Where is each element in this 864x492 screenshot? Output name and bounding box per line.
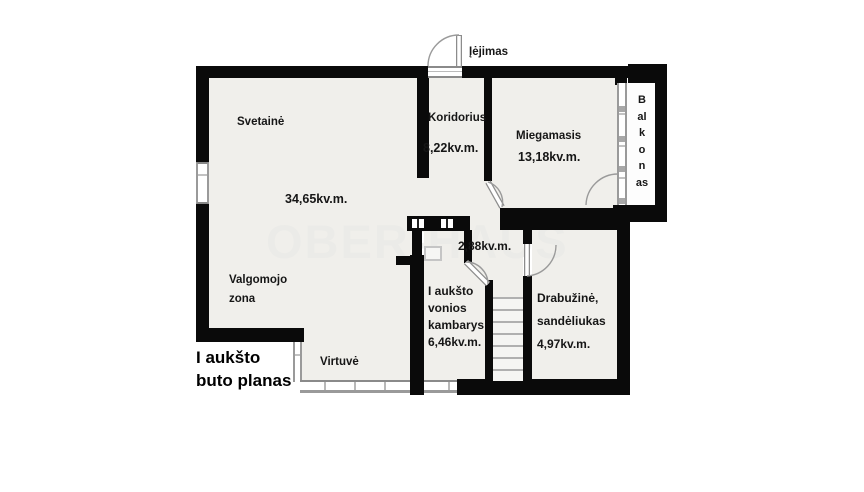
wall-segment: [485, 280, 493, 381]
entrance-label: Įėjimas: [469, 46, 508, 58]
door-entrance: [428, 35, 459, 66]
room-label-line: o: [630, 142, 654, 159]
room-label-drabuzine: Drabužinė, sandėliukas 4,97kv.m.: [537, 287, 606, 356]
wall-segment: [655, 64, 667, 222]
entrance-threshold: [428, 66, 462, 78]
room-label-line: al: [630, 109, 654, 126]
wall-segment: [484, 78, 492, 181]
room-label-koridorius: Koridorius: [428, 112, 486, 124]
room-label-virtuve: Virtuvė: [320, 356, 359, 368]
window: [424, 380, 457, 393]
room-label-line: I aukšto: [428, 283, 484, 300]
stair-tread: [493, 321, 523, 333]
room-label-line: kambarys: [428, 317, 484, 334]
wall-segment: [196, 66, 209, 162]
room-label-line: sandėliukas: [537, 310, 606, 333]
wall-segment: [196, 204, 209, 342]
window-latch-icon: [619, 106, 625, 112]
window-latch-icon: [619, 198, 625, 204]
room-label-line: zona: [229, 290, 287, 309]
floor-plan: OBER-HAUS: [0, 0, 864, 492]
plan-title-line: buto planas: [196, 369, 291, 392]
stair-landing: [493, 282, 523, 297]
wall-segment: [457, 379, 630, 395]
room-label-vonia: I aukšto vonios kambarys 6,46kv.m.: [428, 283, 484, 351]
plan-title-line: I aukšto: [196, 346, 291, 369]
area-label-tualetas: 2,88kv.m.: [458, 239, 511, 253]
stair-tread: [493, 333, 523, 345]
door-arc: [428, 35, 459, 66]
wall-segment: [462, 66, 628, 78]
room-label-line: n: [630, 158, 654, 175]
area-label-svetaine: 34,65kv.m.: [285, 192, 347, 206]
room-label-line: B: [630, 92, 654, 109]
window: [196, 162, 209, 204]
wall-segment: [396, 256, 412, 265]
room-label-line: Valgomojo: [229, 271, 287, 290]
staircase: [493, 282, 523, 381]
room-label-line: vonios: [428, 300, 484, 317]
room-label-miegamasis: Miegamasis: [516, 130, 581, 142]
room-label-svetaine: Svetainė: [237, 116, 284, 128]
area-label-miegamasis: 13,18kv.m.: [518, 150, 580, 164]
stove-symbol-icon: [441, 219, 453, 228]
window: [293, 342, 302, 382]
balcony-glass-window: [617, 83, 627, 205]
wall-segment: [410, 255, 424, 395]
window-latch-icon: [619, 166, 625, 172]
stair-tread: [493, 309, 523, 321]
room-label-line: Drabužinė,: [537, 287, 606, 310]
stove-symbol-icon: [412, 219, 424, 228]
plan-title: I aukšto buto planas: [196, 346, 291, 392]
wall-segment: [500, 208, 630, 230]
sink-fixture: [424, 246, 442, 261]
stair-tread: [493, 357, 523, 369]
area-label-koridorius: 8,22kv.m.: [423, 141, 478, 155]
window: [300, 380, 410, 393]
stair-tread: [493, 297, 523, 309]
window-latch-icon: [619, 136, 625, 142]
wall-segment: [523, 228, 532, 244]
wall-segment: [196, 66, 428, 78]
wall-segment: [617, 222, 630, 393]
stair-tread: [493, 369, 523, 381]
wall-segment: [417, 78, 429, 178]
area-label-drabuzine: 4,97kv.m.: [537, 333, 606, 356]
wall-segment: [196, 328, 304, 342]
room-label-line: k: [630, 125, 654, 142]
stair-tread: [493, 345, 523, 357]
room-floor-miegamasis: [492, 78, 617, 210]
wall-segment: [613, 205, 667, 222]
room-floor-virtuve: [300, 328, 412, 381]
room-label-valgomojo: Valgomojo zona: [229, 271, 287, 309]
room-label-balkonas: B al k o n as: [630, 92, 654, 191]
room-label-line: as: [630, 175, 654, 192]
wall-segment: [523, 276, 532, 381]
area-label-vonia: 6,46kv.m.: [428, 334, 484, 351]
